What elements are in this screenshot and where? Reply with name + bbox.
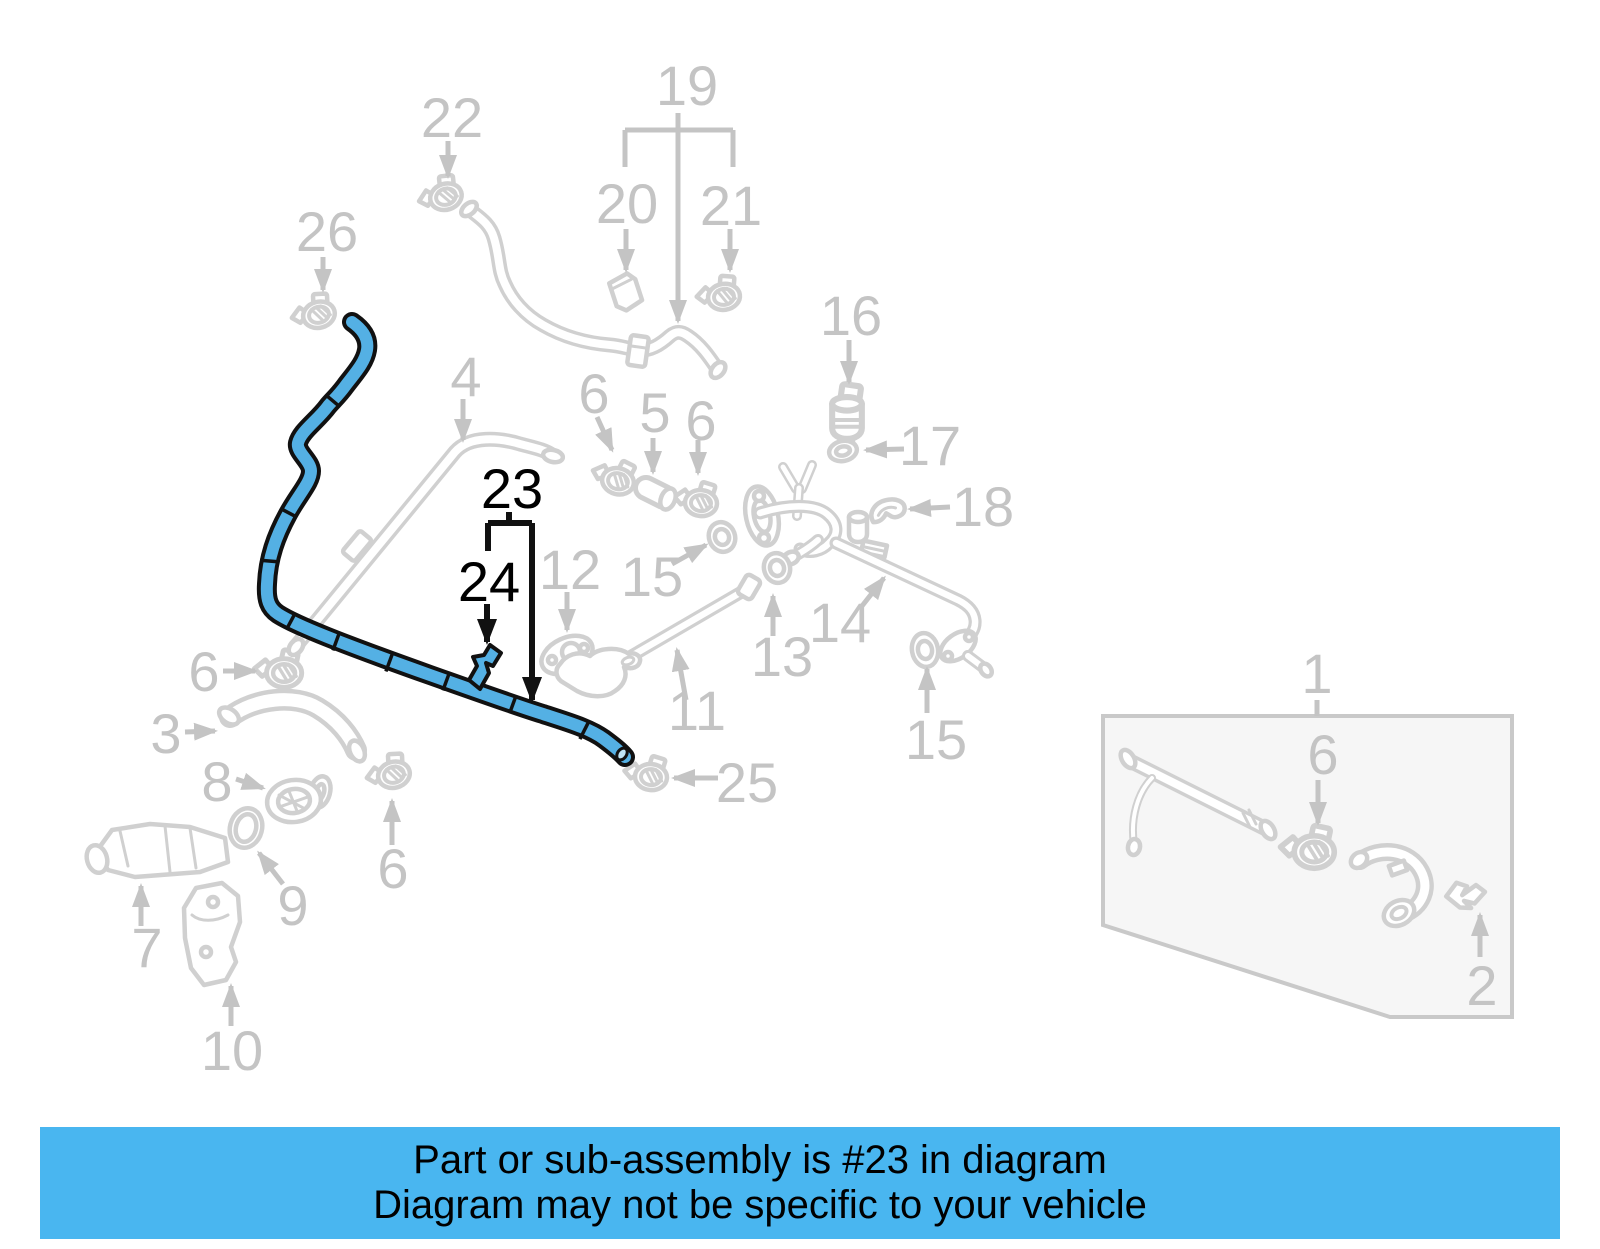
o-ring-15-left <box>705 518 740 555</box>
clip-icon-20 <box>608 272 644 313</box>
part-label-20: 20 <box>596 172 658 235</box>
clip-icon-18 <box>869 498 906 523</box>
part-label-24: 24 <box>458 550 520 613</box>
banner-line-2: Diagram may not be specific to your vehi… <box>373 1183 1147 1228</box>
hose-clamp-icon-6a <box>589 454 639 498</box>
part-label-1: 1 <box>1301 642 1332 705</box>
hose-clamp-icon-6b <box>673 479 719 517</box>
part-label-19: 19 <box>656 54 718 117</box>
info-banner: Part or sub-assembly is #23 in diagram D… <box>40 1127 1560 1239</box>
part-label-17: 17 <box>899 414 961 477</box>
cover-10 <box>184 883 240 985</box>
part-label-12: 12 <box>539 538 601 601</box>
part-label-26: 26 <box>296 200 358 263</box>
hose-3 <box>216 700 368 764</box>
part-label-13: 13 <box>751 625 813 688</box>
part-label-9: 9 <box>277 874 308 937</box>
highlighted-clip-24 <box>469 645 501 689</box>
bypass-hose-19 <box>459 199 729 381</box>
part-label-6e: 6 <box>377 837 408 900</box>
part-label-6d: 6 <box>1307 723 1338 786</box>
parts-diagram: 2219202126164656172318121524141316113156… <box>0 0 1600 1249</box>
o-ring-15-right <box>909 631 941 669</box>
part-label-21: 21 <box>700 174 762 237</box>
part-label-6b: 6 <box>685 389 716 452</box>
part-label-6c: 6 <box>188 640 219 703</box>
thermostat-8 <box>264 774 333 826</box>
part-label-16: 16 <box>820 284 882 347</box>
part-label-6a: 6 <box>578 362 609 425</box>
part-label-2: 2 <box>1466 954 1497 1017</box>
hose-clamp-icon-21 <box>694 273 741 313</box>
o-ring-17 <box>827 438 859 463</box>
parts-diagram-page: 2219202126164656172318121524141316113156… <box>0 0 1600 1249</box>
part-label-25: 25 <box>716 751 778 814</box>
part-label-3: 3 <box>150 702 181 765</box>
banner-line-1: Part or sub-assembly is #23 in diagram <box>413 1138 1107 1183</box>
part-label-7: 7 <box>131 916 162 979</box>
part-label-5: 5 <box>639 381 670 444</box>
bushing-icon-5 <box>646 486 679 512</box>
part-label-8: 8 <box>201 750 232 813</box>
hose-clamp-icon-6e <box>362 750 412 794</box>
part-label-22: 22 <box>421 86 483 149</box>
part-label-23: 23 <box>481 457 543 520</box>
hose-clamp-icon-26 <box>287 290 337 334</box>
part-label-14: 14 <box>809 591 871 654</box>
part-label-15a: 15 <box>621 545 683 608</box>
pipe-assembly-7 <box>84 824 228 877</box>
hose-clamp-icon-22 <box>414 171 466 217</box>
part-label-18: 18 <box>952 475 1014 538</box>
part-label-10: 10 <box>201 1019 263 1082</box>
part-label-15b: 15 <box>905 708 967 771</box>
part-label-4: 4 <box>450 345 481 408</box>
part-label-11: 11 <box>668 679 726 742</box>
